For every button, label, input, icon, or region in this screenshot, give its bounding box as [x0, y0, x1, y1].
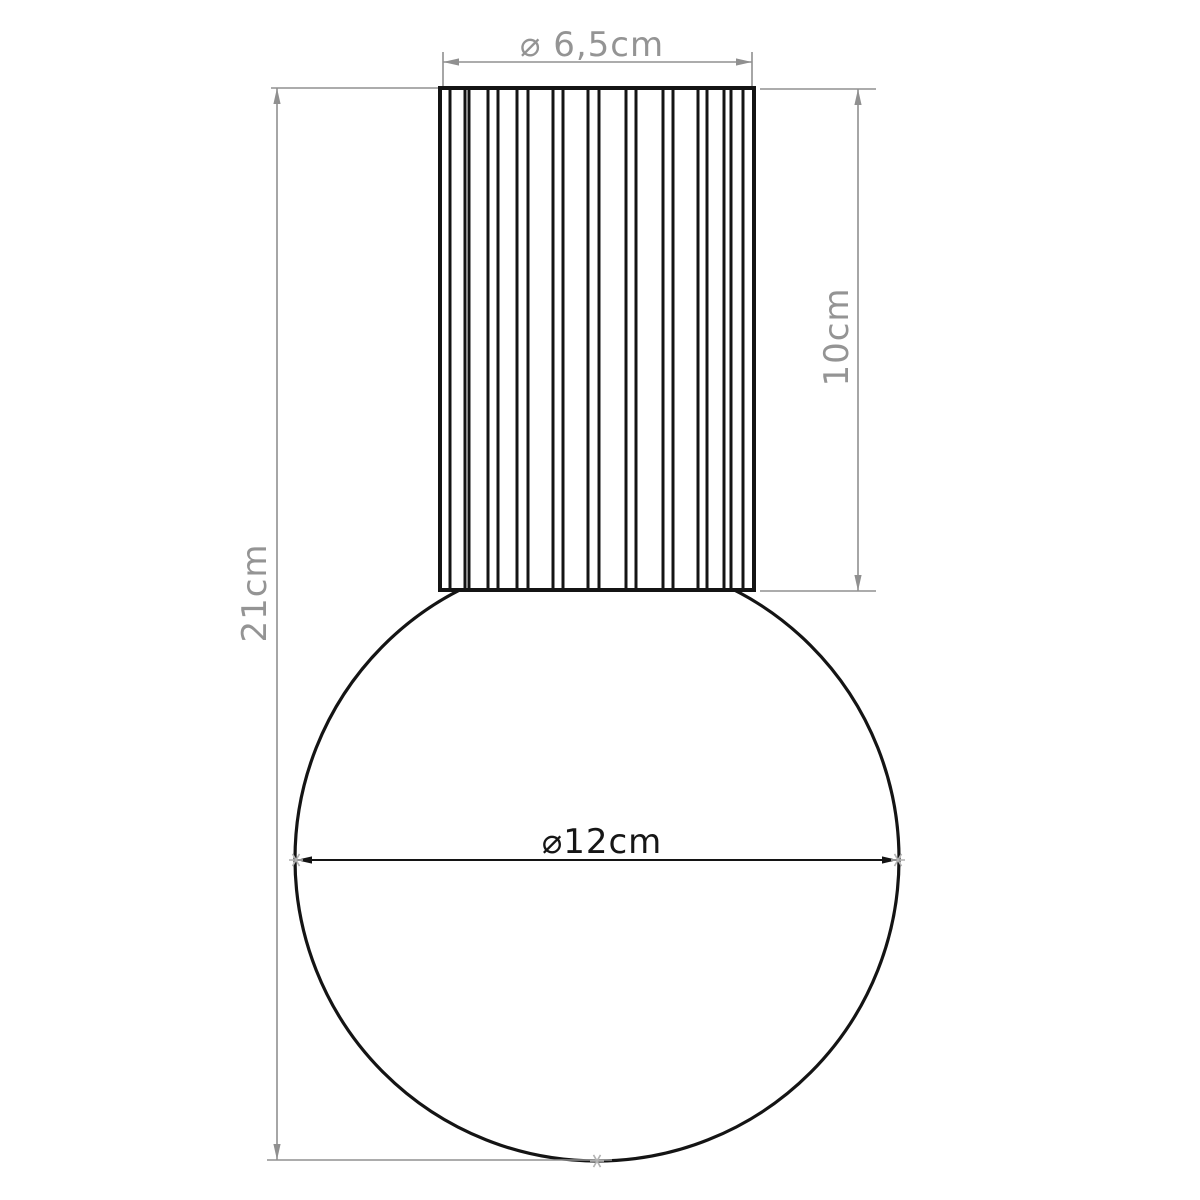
arrowhead: [443, 58, 459, 65]
dimension-label-top-diameter: ⌀ 6,5cm: [520, 28, 664, 62]
arrowhead: [273, 88, 280, 104]
dimension-label-cylinder-height: 10cm: [820, 287, 854, 386]
arrowhead: [854, 89, 861, 105]
lamp-line-drawing: [0, 0, 1200, 1200]
arrowhead: [273, 1144, 280, 1160]
dimension-label-total-height: 21cm: [238, 543, 272, 642]
technical-drawing-page: ⌀ 6,5cm 10cm 21cm ⌀12cm: [0, 0, 1200, 1200]
dimension-label-sphere-diameter: ⌀12cm: [542, 825, 663, 859]
arrowhead: [736, 58, 752, 65]
arrowhead: [854, 575, 861, 591]
